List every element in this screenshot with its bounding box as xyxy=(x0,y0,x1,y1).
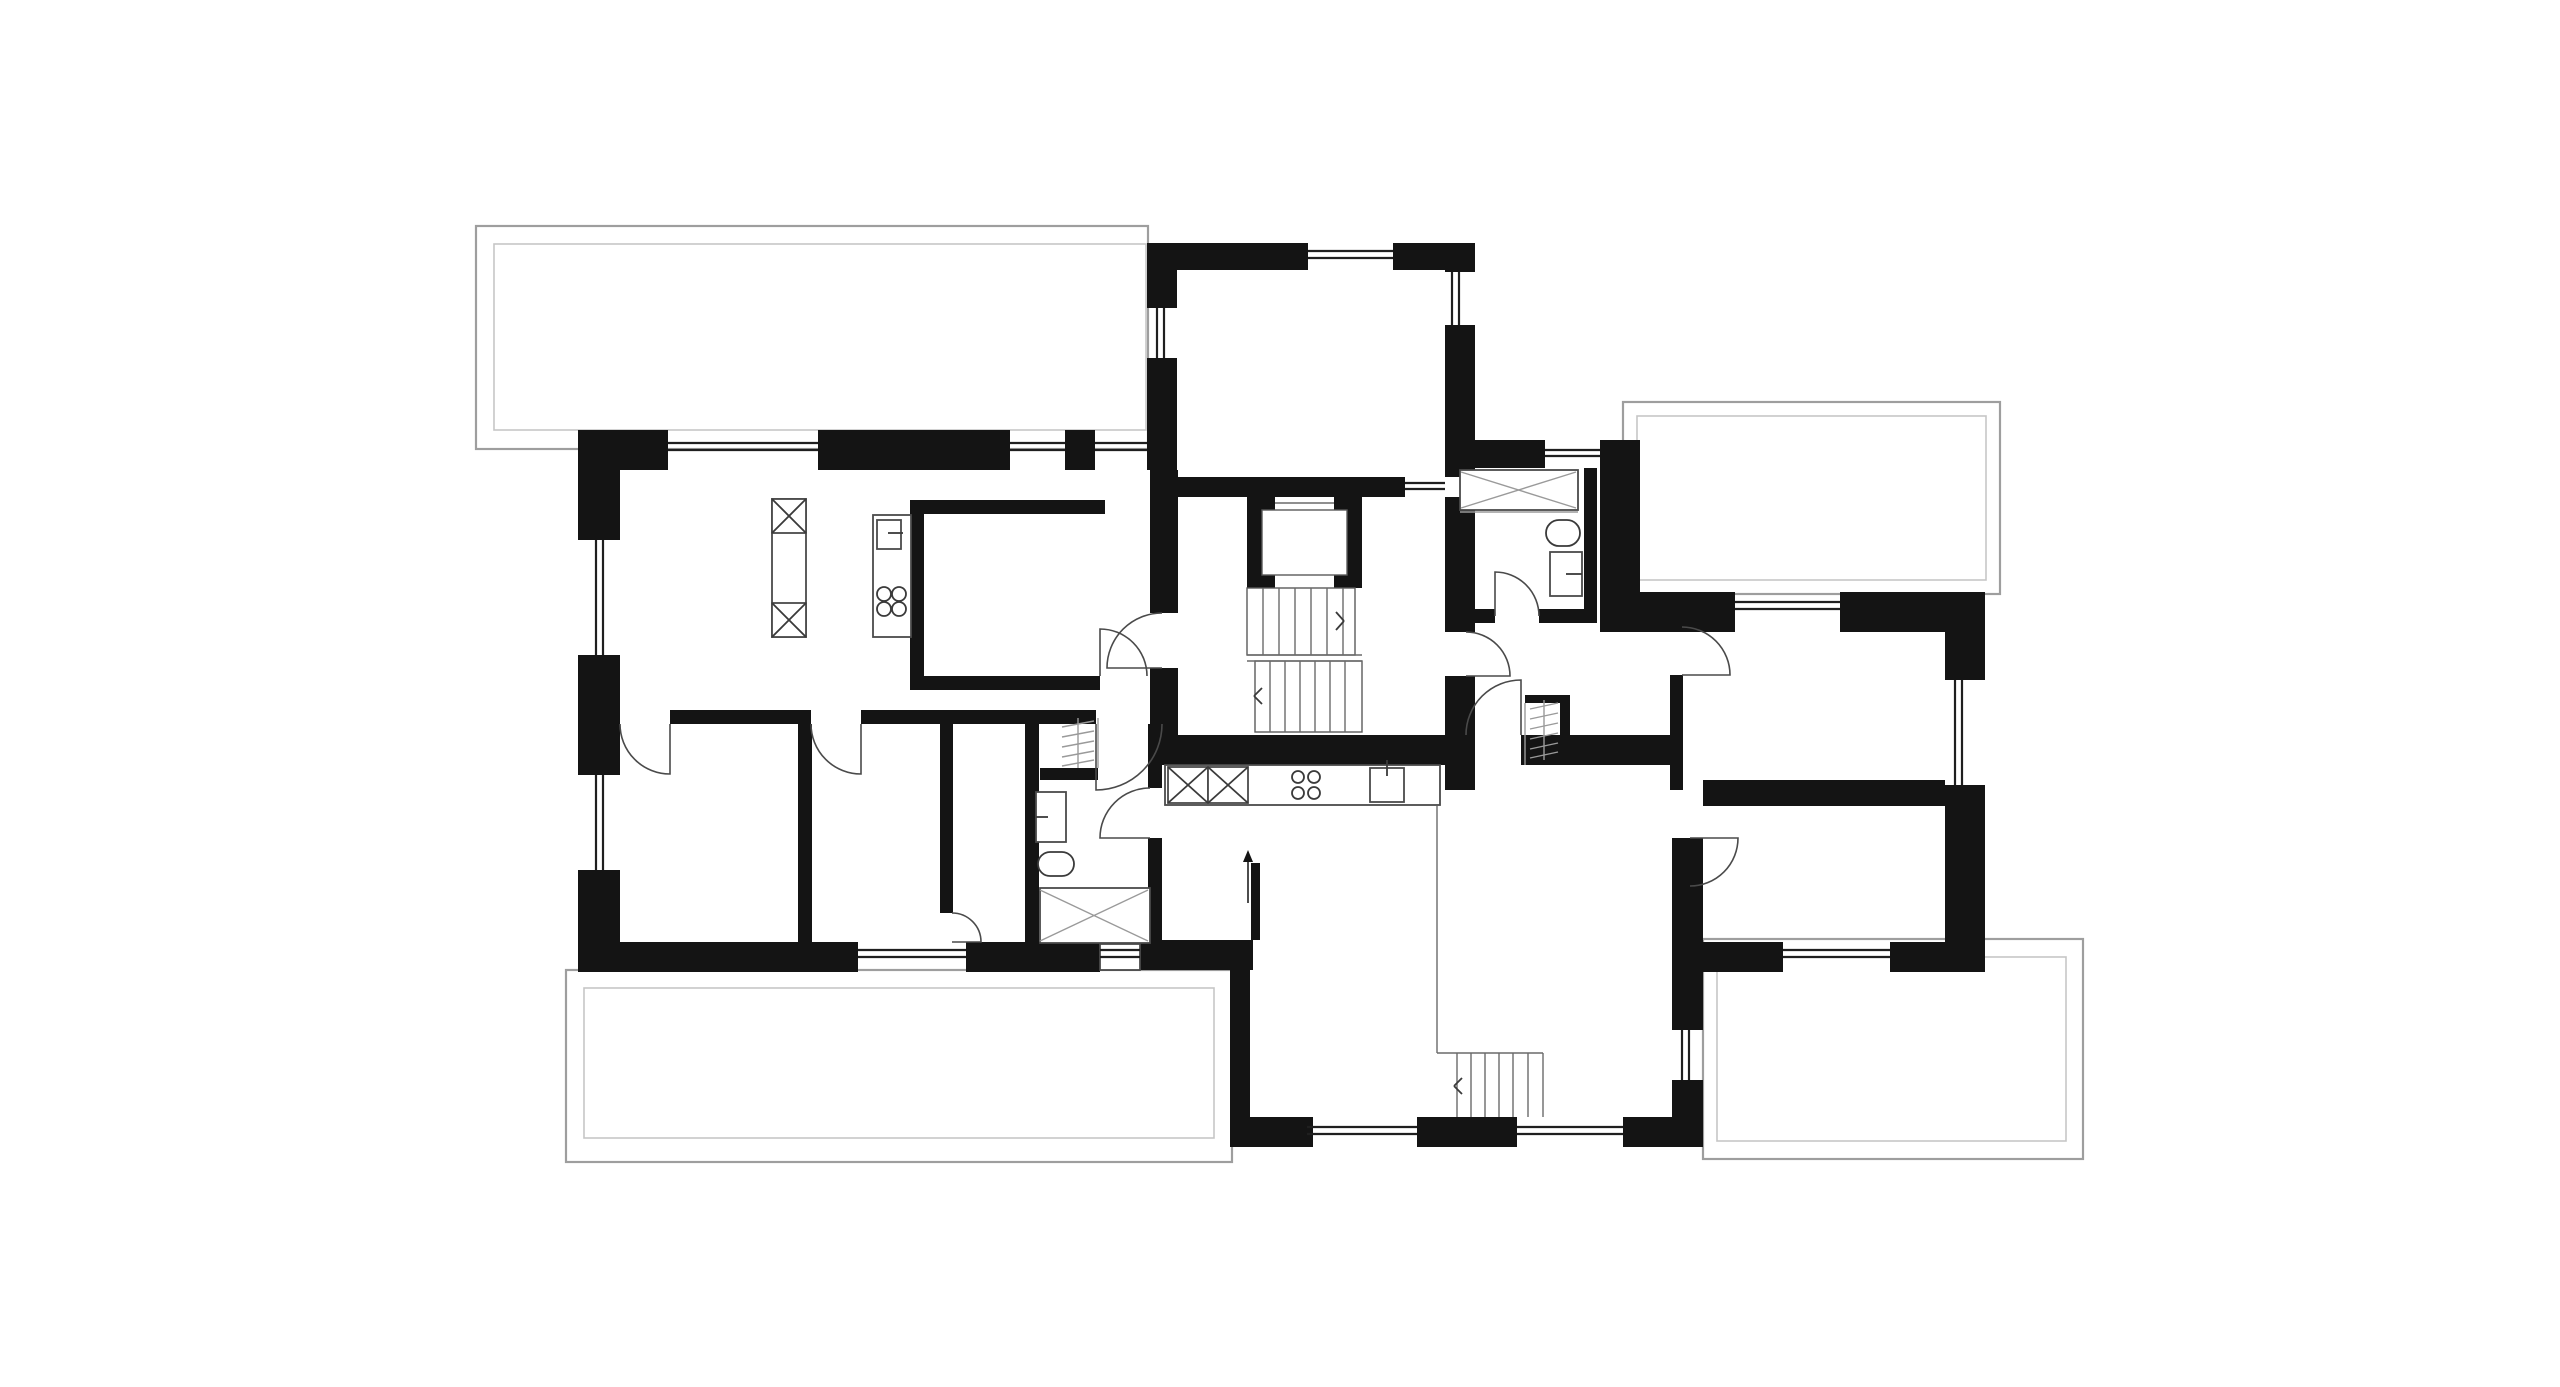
wall-segment xyxy=(1945,592,1985,680)
cooktop-burner xyxy=(1292,787,1304,799)
door-swing xyxy=(620,724,670,774)
direction-chevron xyxy=(1454,1078,1462,1086)
elevator-wall xyxy=(1334,497,1362,510)
elevator-wall xyxy=(1347,497,1362,588)
kitchen-sink xyxy=(877,520,901,549)
wall-segment xyxy=(578,655,620,775)
terrace-top-left-outer xyxy=(476,226,1148,449)
wall-segment xyxy=(940,724,953,913)
wall-segment xyxy=(818,430,1010,470)
wall-segment xyxy=(578,942,858,972)
wall-segment xyxy=(1445,440,1545,468)
wall-segment xyxy=(1630,592,1735,632)
elevator-wall xyxy=(1247,575,1275,588)
terrace-bottom-left-outer xyxy=(566,970,1232,1162)
elevator-wall xyxy=(1334,575,1362,588)
wall-segment xyxy=(1230,1117,1313,1147)
wall-segment xyxy=(798,724,812,942)
terrace-bottom-left-inner xyxy=(584,988,1214,1138)
wall-segment xyxy=(1672,1080,1703,1117)
wall-segment xyxy=(1140,940,1253,970)
wall-segment xyxy=(670,710,811,724)
door-swing xyxy=(952,913,981,942)
wall-segment xyxy=(1040,768,1098,780)
door-swing xyxy=(1466,632,1510,676)
door-swing xyxy=(1100,788,1150,838)
door-swing xyxy=(1100,629,1147,676)
terrace-top-left-inner xyxy=(494,244,1146,430)
toilet xyxy=(1546,520,1580,546)
wall-segment xyxy=(1147,243,1177,308)
wall-segment xyxy=(1417,1117,1517,1147)
cooktop-burner xyxy=(1308,771,1320,783)
cooktop-burner xyxy=(892,587,906,601)
floor-plan-svg xyxy=(0,0,2560,1387)
door-swing xyxy=(1682,627,1730,675)
closet-wall xyxy=(1560,695,1570,765)
elevator-car-outline xyxy=(1262,510,1347,575)
wall-segment xyxy=(966,942,1100,972)
wall-segment xyxy=(1890,942,1985,972)
wall-segment xyxy=(1150,470,1178,613)
direction-chevron xyxy=(1454,1086,1462,1094)
cooktop-burner xyxy=(877,602,891,616)
wall-segment xyxy=(861,710,1096,724)
wall-segment xyxy=(1065,430,1095,470)
wall-segment xyxy=(1623,1117,1703,1147)
wall-segment xyxy=(1670,675,1683,790)
wall-segment xyxy=(1445,676,1475,790)
wall-segment xyxy=(1703,942,1783,972)
wall-segment xyxy=(1703,780,1945,806)
wall-segment xyxy=(1230,970,1250,1117)
cooktop-burner xyxy=(1308,787,1320,799)
elevator-wall xyxy=(1247,497,1262,588)
door-swing xyxy=(1495,572,1539,616)
floor-plan-page xyxy=(0,0,2560,1387)
door-swing xyxy=(811,724,861,774)
cooktop-burner xyxy=(1292,771,1304,783)
wall-segment xyxy=(1177,735,1450,765)
wall-segment xyxy=(1450,735,1466,765)
wall-segment xyxy=(578,430,620,540)
cooktop-burner xyxy=(892,602,906,616)
wall-segment xyxy=(1584,468,1597,623)
wall-segment xyxy=(1150,668,1178,765)
terrace-top-right-outer xyxy=(1623,402,2000,594)
wall-segment xyxy=(1445,243,1475,272)
wall-segment xyxy=(1445,497,1475,632)
wall-segment xyxy=(910,500,924,690)
terrace-top-right-inner xyxy=(1637,416,1986,580)
elevator-wall xyxy=(1247,497,1275,510)
cooktop-burner xyxy=(877,587,891,601)
wall-segment xyxy=(1475,609,1495,623)
terrace-bottom-right-inner xyxy=(1717,957,2066,1141)
door-swing xyxy=(1107,613,1162,668)
stair-flight-outline xyxy=(1255,661,1362,732)
entry-arrow-head xyxy=(1243,850,1253,862)
wall-segment xyxy=(1251,863,1260,940)
wall-segment xyxy=(1147,358,1177,470)
wall-segment xyxy=(910,676,1100,690)
wall-segment xyxy=(910,500,1105,514)
wall-segment xyxy=(1672,838,1703,1030)
toilet xyxy=(1038,852,1074,876)
wall-segment xyxy=(1539,609,1597,623)
wall-segment xyxy=(1155,477,1405,497)
